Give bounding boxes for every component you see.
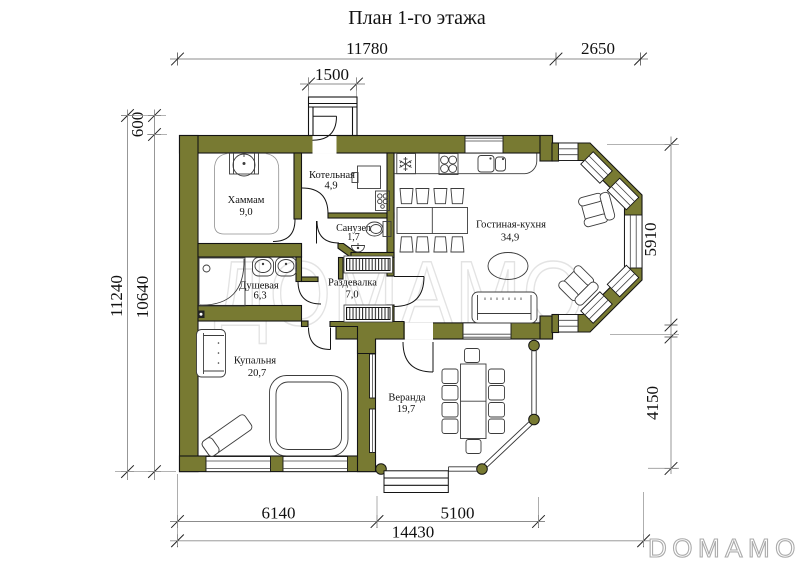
svg-text:Котельная: Котельная (309, 170, 355, 181)
svg-text:11780: 11780 (346, 39, 388, 58)
svg-text:7,0: 7,0 (345, 290, 358, 301)
svg-text:Гостиная-кухня: Гостиная-кухня (476, 220, 546, 231)
svg-text:34,9: 34,9 (501, 233, 519, 244)
svg-text:4150: 4150 (643, 386, 662, 420)
svg-text:6140: 6140 (262, 504, 296, 523)
svg-text:4,9: 4,9 (324, 181, 337, 192)
svg-text:1,7: 1,7 (347, 232, 360, 243)
svg-text:Раздевалка: Раздевалка (328, 278, 377, 289)
svg-text:Хаммам: Хаммам (228, 195, 265, 206)
svg-text:Купальня: Купальня (234, 356, 276, 367)
svg-text:План 1-го этажа: План 1-го этажа (348, 7, 486, 29)
svg-text:5100: 5100 (441, 504, 475, 523)
svg-text:20,7: 20,7 (248, 368, 266, 379)
svg-text:6,3: 6,3 (253, 291, 266, 302)
svg-text:2650: 2650 (581, 39, 615, 58)
svg-text:10640: 10640 (133, 276, 152, 319)
svg-text:Веранда: Веранда (388, 393, 426, 404)
svg-text:19,7: 19,7 (397, 404, 415, 415)
svg-text:9,0: 9,0 (239, 207, 252, 218)
svg-text:DOMAMO: DOMAMO (648, 533, 800, 563)
svg-text:14430: 14430 (392, 523, 435, 542)
svg-text:11240: 11240 (107, 275, 126, 317)
svg-text:5910: 5910 (641, 223, 660, 257)
svg-text:1500: 1500 (315, 65, 349, 84)
